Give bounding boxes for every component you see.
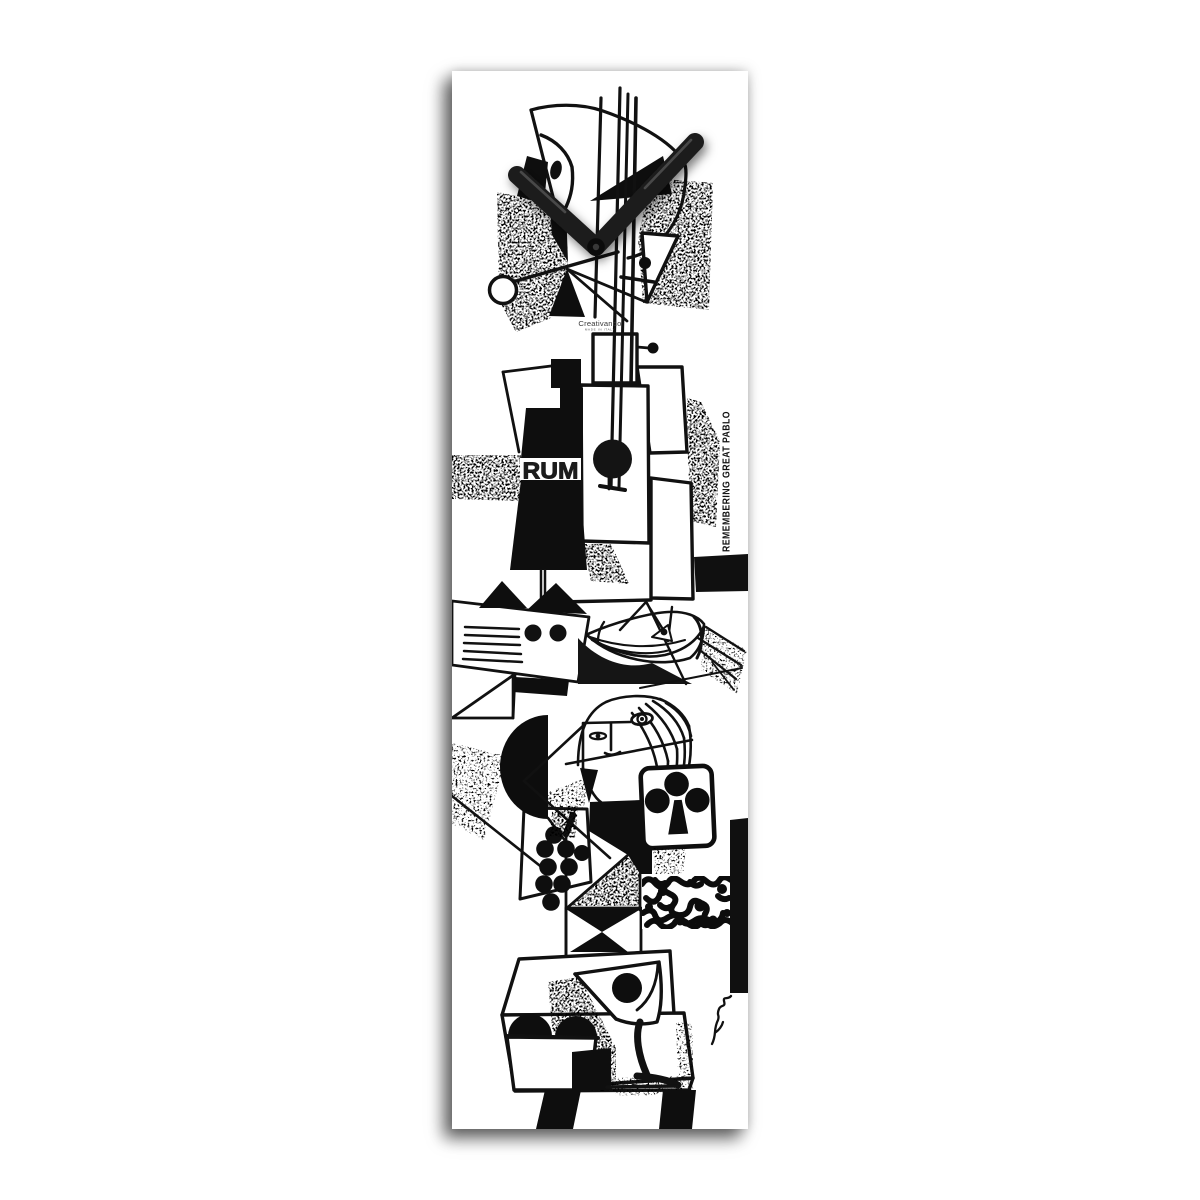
svg-text:RUM: RUM (523, 458, 579, 484)
svg-text:REMEMBERING GREAT PABLO: REMEMBERING GREAT PABLO (722, 411, 733, 552)
svg-text:MADE IN ITALY: MADE IN ITALY (585, 328, 615, 332)
